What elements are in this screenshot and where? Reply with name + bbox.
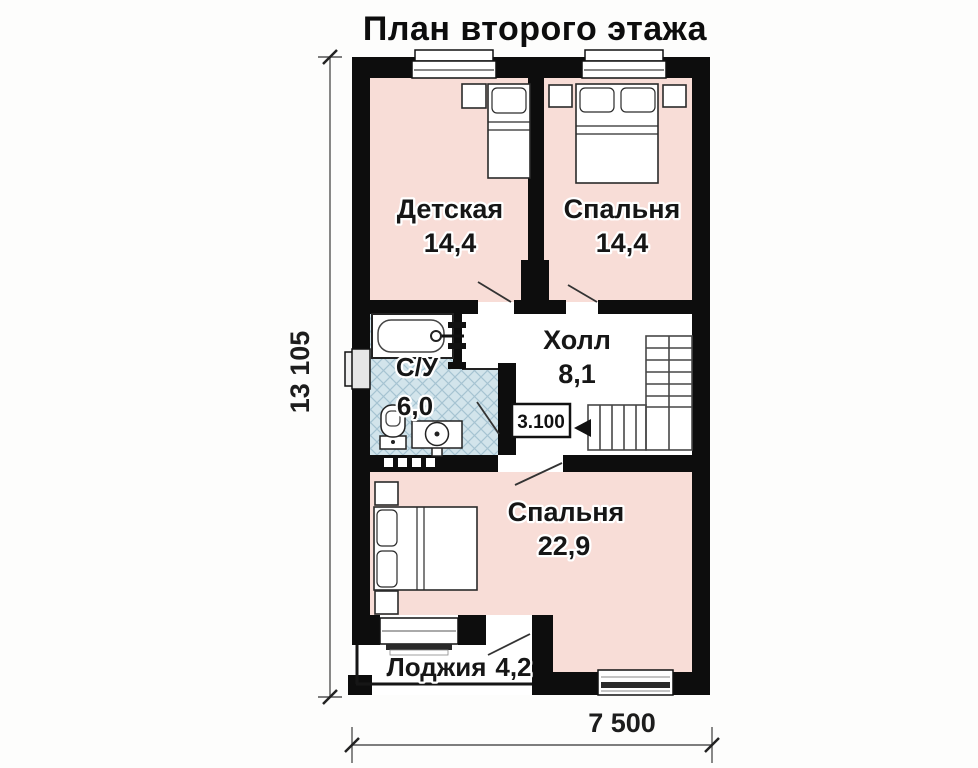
wall-loggia-window-right	[458, 615, 486, 645]
dimension-horizontal: 7 500	[588, 708, 656, 738]
bathroom-name: С/У	[396, 352, 439, 382]
window-bottom-right	[598, 670, 673, 695]
dimension-vertical: 13 105	[285, 331, 315, 414]
wall-hall-bottom-1	[352, 455, 498, 472]
wall-loggia-window-left	[352, 615, 380, 645]
wall-bathroom-cap	[448, 362, 466, 369]
hall-area: 8,1	[558, 359, 596, 389]
loggia-area: 4,2	[495, 652, 531, 682]
elevation-marker: 3.100	[512, 404, 570, 437]
bedroom-top-name: Спальня	[564, 194, 681, 224]
wall-divider-block	[521, 260, 549, 300]
elevation-value: 3.100	[517, 412, 565, 433]
window-top-right	[582, 50, 666, 78]
floor-plan-drawing: План второго этажа	[0, 0, 978, 768]
nursery-area: 14,4	[424, 228, 477, 258]
wall-mid-3	[598, 300, 692, 314]
bedroom-main-name: Спальня	[508, 497, 625, 527]
window-bedroom-loggia	[380, 618, 458, 655]
bathroom-area: 6,0	[397, 391, 433, 421]
floor-plan-page: План второго этажа	[0, 0, 978, 768]
nursery-name: Детская	[397, 194, 503, 224]
loggia-name: Лоджия	[386, 652, 486, 682]
wall-hall-bottom-2	[563, 455, 692, 472]
wall-right	[692, 57, 710, 695]
wall-mid-2	[514, 300, 566, 314]
window-left-bathroom	[345, 349, 370, 389]
bedroom-main-floor-ext	[553, 615, 692, 672]
bedroom-top-area: 14,4	[596, 228, 649, 258]
hall-name: Холл	[543, 325, 611, 355]
window-top-left	[412, 50, 496, 78]
page-title: План второго этажа	[363, 10, 708, 48]
loggia-label: Лоджия4,2	[386, 652, 531, 682]
bedroom-main-area: 22,9	[538, 531, 591, 561]
wall-loggia-column	[532, 615, 553, 695]
